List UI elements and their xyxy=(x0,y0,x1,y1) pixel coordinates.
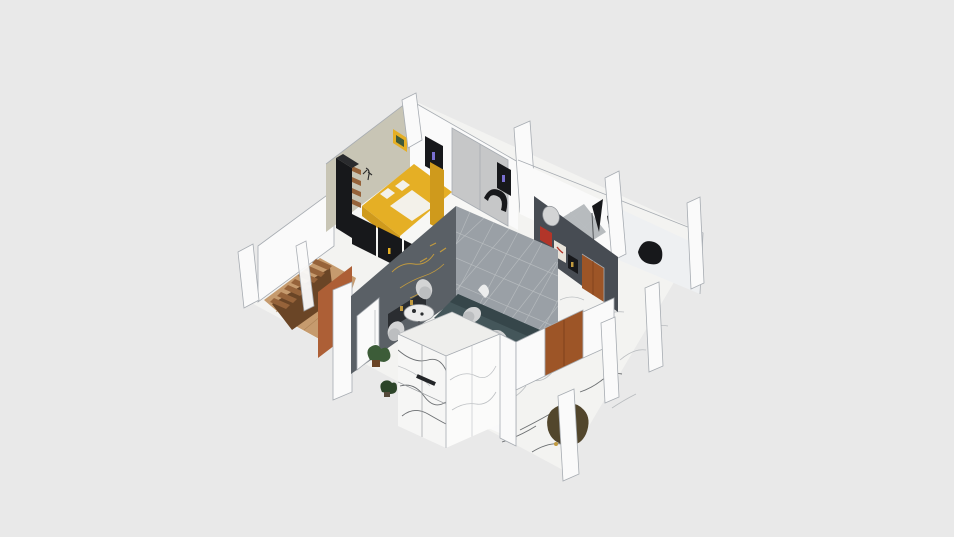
art-figure xyxy=(432,152,435,160)
floorplan-canvas[interactable] xyxy=(0,0,954,537)
kitchen-side-wall xyxy=(500,334,516,446)
floorplan-3d-viewport[interactable] xyxy=(0,0,954,537)
decor-accent-gold xyxy=(554,442,558,446)
art-figure xyxy=(502,175,505,182)
kitchen-island-marble[interactable] xyxy=(398,312,500,448)
southwest-outer-wall xyxy=(333,282,352,400)
decor-accent xyxy=(388,248,391,254)
